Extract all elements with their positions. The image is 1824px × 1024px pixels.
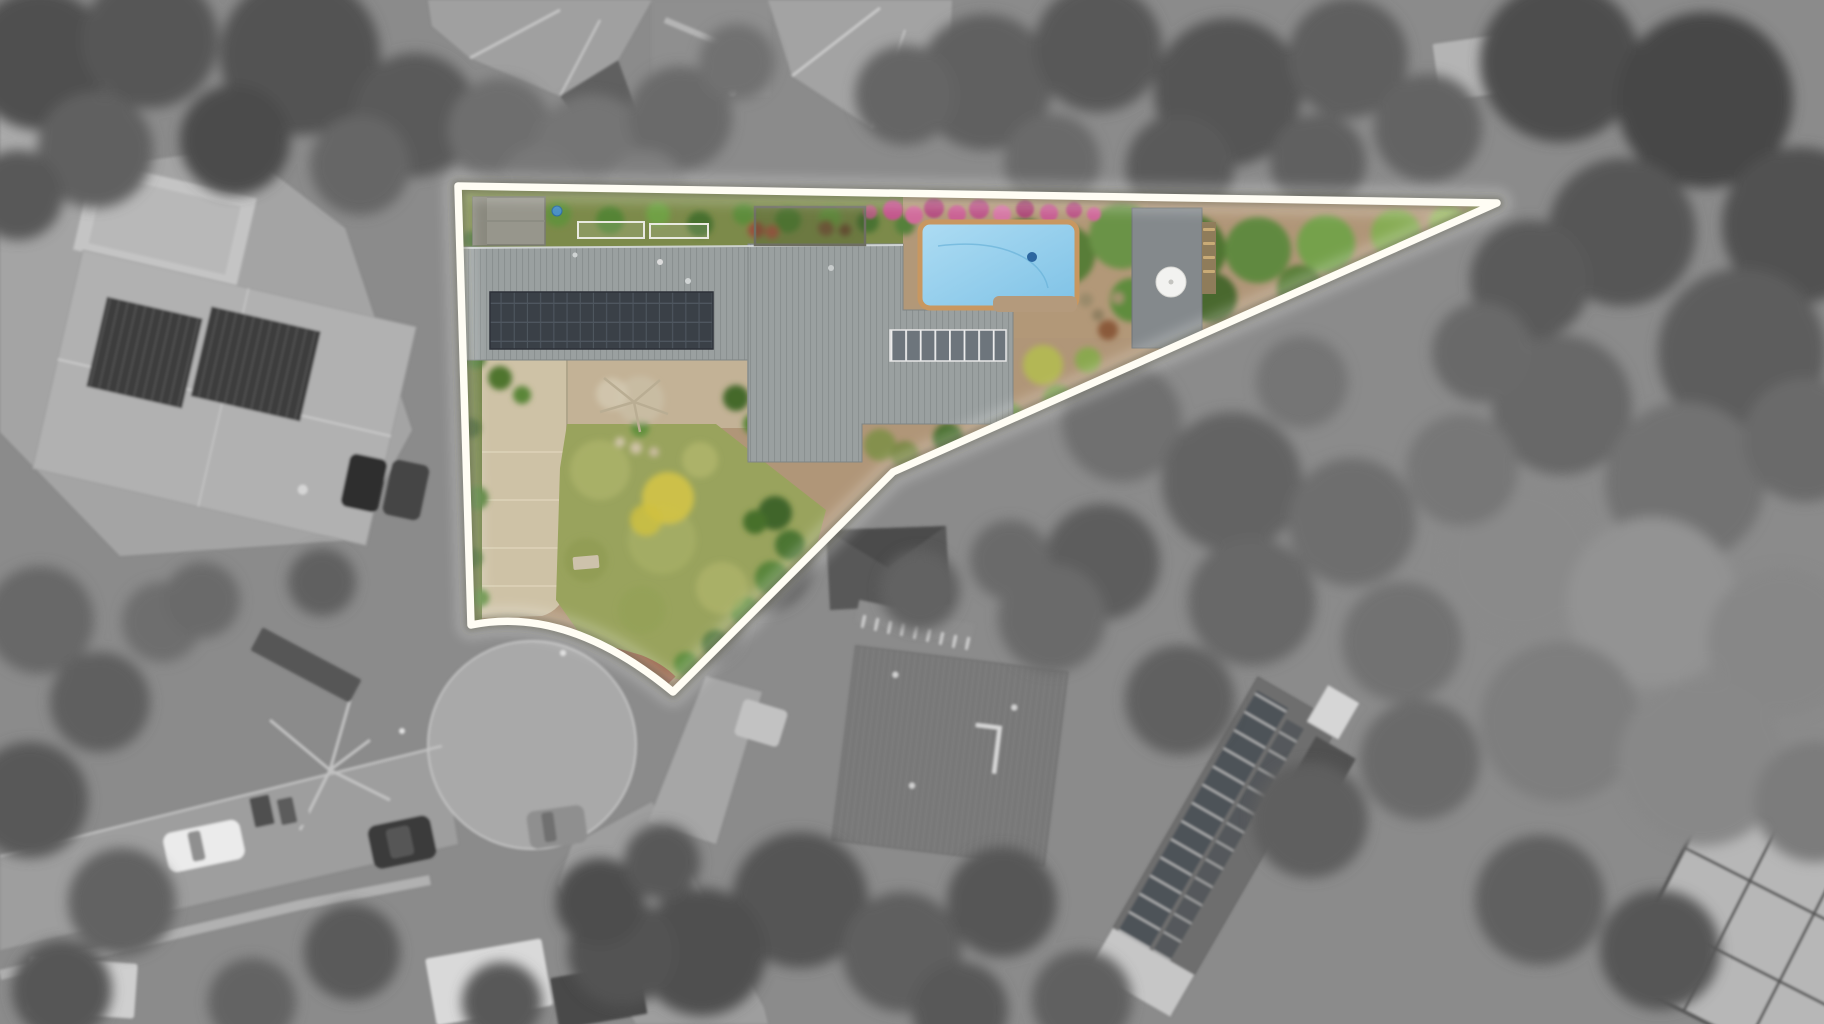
shrub-blob <box>615 437 625 447</box>
deck-step <box>1203 256 1215 259</box>
shrub-blob <box>513 386 531 404</box>
roof-vent <box>573 253 578 258</box>
garden-bench <box>572 555 599 570</box>
shrub-blob <box>570 440 630 500</box>
tree-blob <box>1374 74 1482 182</box>
shrub-blob <box>630 504 662 536</box>
deck-step <box>1203 228 1215 231</box>
shrub-blob <box>488 366 512 390</box>
tree-blob <box>699 24 775 100</box>
umbrella-pole <box>1169 280 1174 285</box>
shrub-blob <box>1023 345 1063 385</box>
shrub-blob <box>682 442 718 478</box>
shrub-blob <box>733 203 755 225</box>
tree-blob <box>1475 835 1605 965</box>
aerial-photo-canvas <box>0 0 1824 1024</box>
secondary-solar-row <box>890 330 1006 361</box>
pool-cleaner <box>1027 252 1037 262</box>
tree-blob <box>1252 762 1368 878</box>
roof-vent <box>828 265 834 271</box>
shrub-blob <box>646 202 670 226</box>
dark-roof-house <box>832 646 1068 867</box>
blue-garden-pot <box>552 206 562 216</box>
tree-blob <box>1188 538 1316 666</box>
tree-blob <box>880 550 960 630</box>
deck-step <box>1203 242 1215 245</box>
tree-blob <box>1125 645 1235 755</box>
shrub-blob <box>618 586 666 634</box>
aerial-property-photo <box>0 0 1824 1024</box>
tree-blob <box>1342 582 1462 702</box>
roof-vent <box>657 259 663 265</box>
shrub-blob <box>1112 292 1124 304</box>
tree-blob <box>947 847 1057 957</box>
trellis-frame <box>755 207 865 245</box>
garden-bed-frame <box>650 224 708 238</box>
tree-blob <box>970 520 1050 600</box>
tree-blob <box>1256 336 1348 428</box>
tree-blob <box>1288 458 1416 586</box>
swimming-pool <box>920 222 1077 308</box>
road-marking <box>560 650 566 656</box>
shrub-blob <box>743 510 767 534</box>
tree-blob <box>624 824 700 900</box>
main-solar-array <box>490 292 713 349</box>
road-marking <box>399 728 405 734</box>
deck-step <box>1203 270 1215 273</box>
shrub-blob <box>723 385 749 411</box>
shrub-blob <box>1225 217 1291 283</box>
shrub-blob <box>649 447 659 457</box>
tree-blob <box>304 904 400 1000</box>
roof-vent <box>685 278 691 284</box>
tree-blob <box>164 562 240 638</box>
shrub-blob <box>1079 293 1093 307</box>
car-gray <box>526 804 589 850</box>
tree-blob <box>855 45 955 145</box>
shrub-blob <box>630 442 642 454</box>
shrub-blob <box>1098 320 1118 340</box>
tree-blob <box>50 652 150 752</box>
tree-blob <box>1600 890 1720 1010</box>
dark-house-roof <box>832 646 1068 867</box>
tree-blob <box>1360 700 1480 820</box>
tree-blob <box>1406 414 1518 526</box>
tree-blob <box>288 548 356 616</box>
pool-step <box>993 296 1077 312</box>
tree-blob <box>68 848 176 956</box>
tree-blob <box>1432 302 1532 402</box>
tree-blob <box>180 85 290 195</box>
pink-flower-blob <box>905 206 923 224</box>
tree-blob <box>1162 412 1302 552</box>
tree-blob <box>310 115 410 215</box>
garden-bed-frame <box>578 222 644 238</box>
tree-blob <box>1480 642 1640 802</box>
shrub-blob <box>1092 309 1104 321</box>
